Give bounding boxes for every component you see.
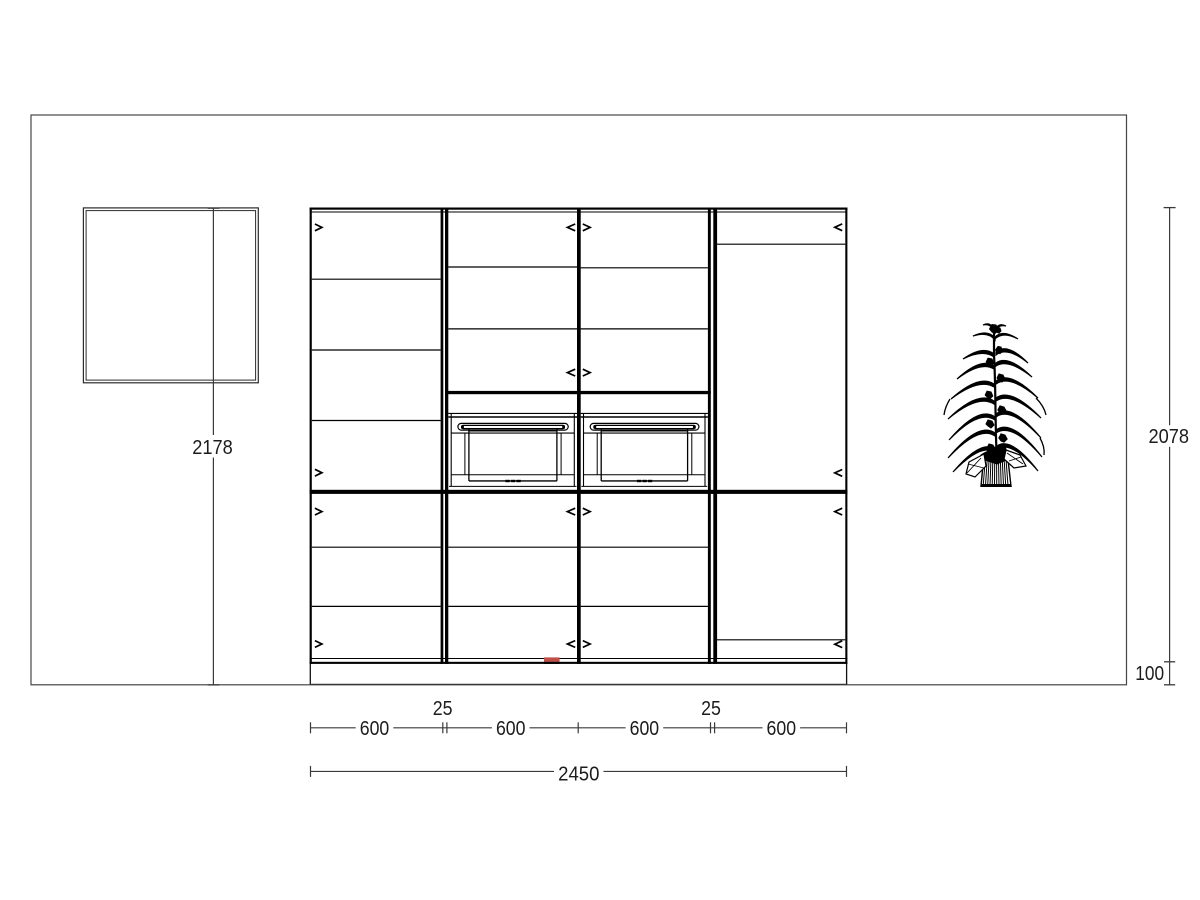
svg-text:2178: 2178	[192, 437, 233, 459]
svg-text:2078: 2078	[1149, 426, 1190, 448]
svg-text:25: 25	[701, 698, 721, 720]
svg-text:25: 25	[433, 698, 453, 720]
svg-text:2450: 2450	[558, 764, 599, 786]
svg-text:600: 600	[496, 718, 526, 740]
svg-text:600: 600	[767, 718, 797, 740]
svg-text:600: 600	[360, 718, 390, 740]
svg-text:600: 600	[630, 718, 660, 740]
svg-text:100: 100	[1135, 663, 1164, 685]
